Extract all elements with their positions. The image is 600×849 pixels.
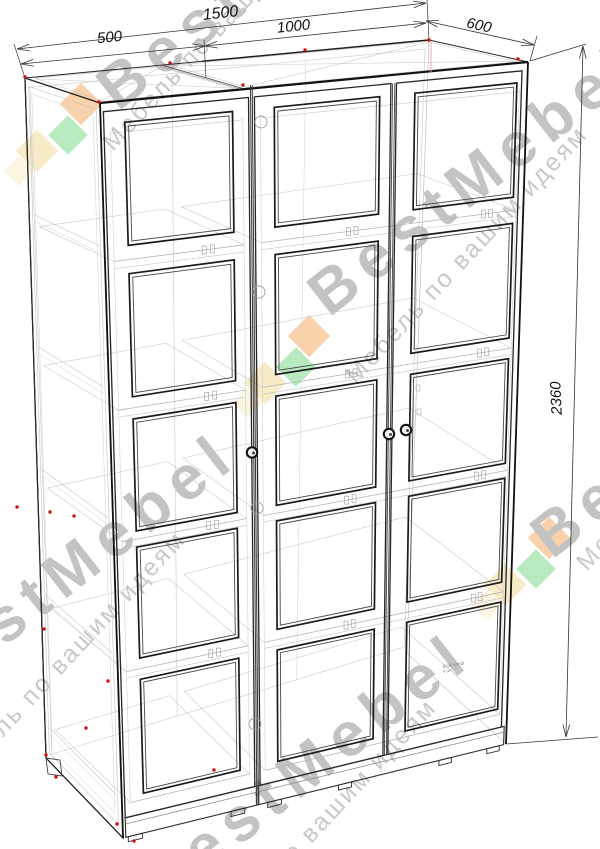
- svg-text:BestMebel: BestMebel: [518, 270, 600, 571]
- svg-text:1000: 1000: [276, 16, 312, 36]
- svg-text:2360: 2360: [547, 381, 566, 417]
- svg-text:500: 500: [96, 28, 123, 47]
- svg-text:600: 600: [465, 15, 494, 37]
- svg-text:BestMebel: BestMebel: [126, 618, 484, 849]
